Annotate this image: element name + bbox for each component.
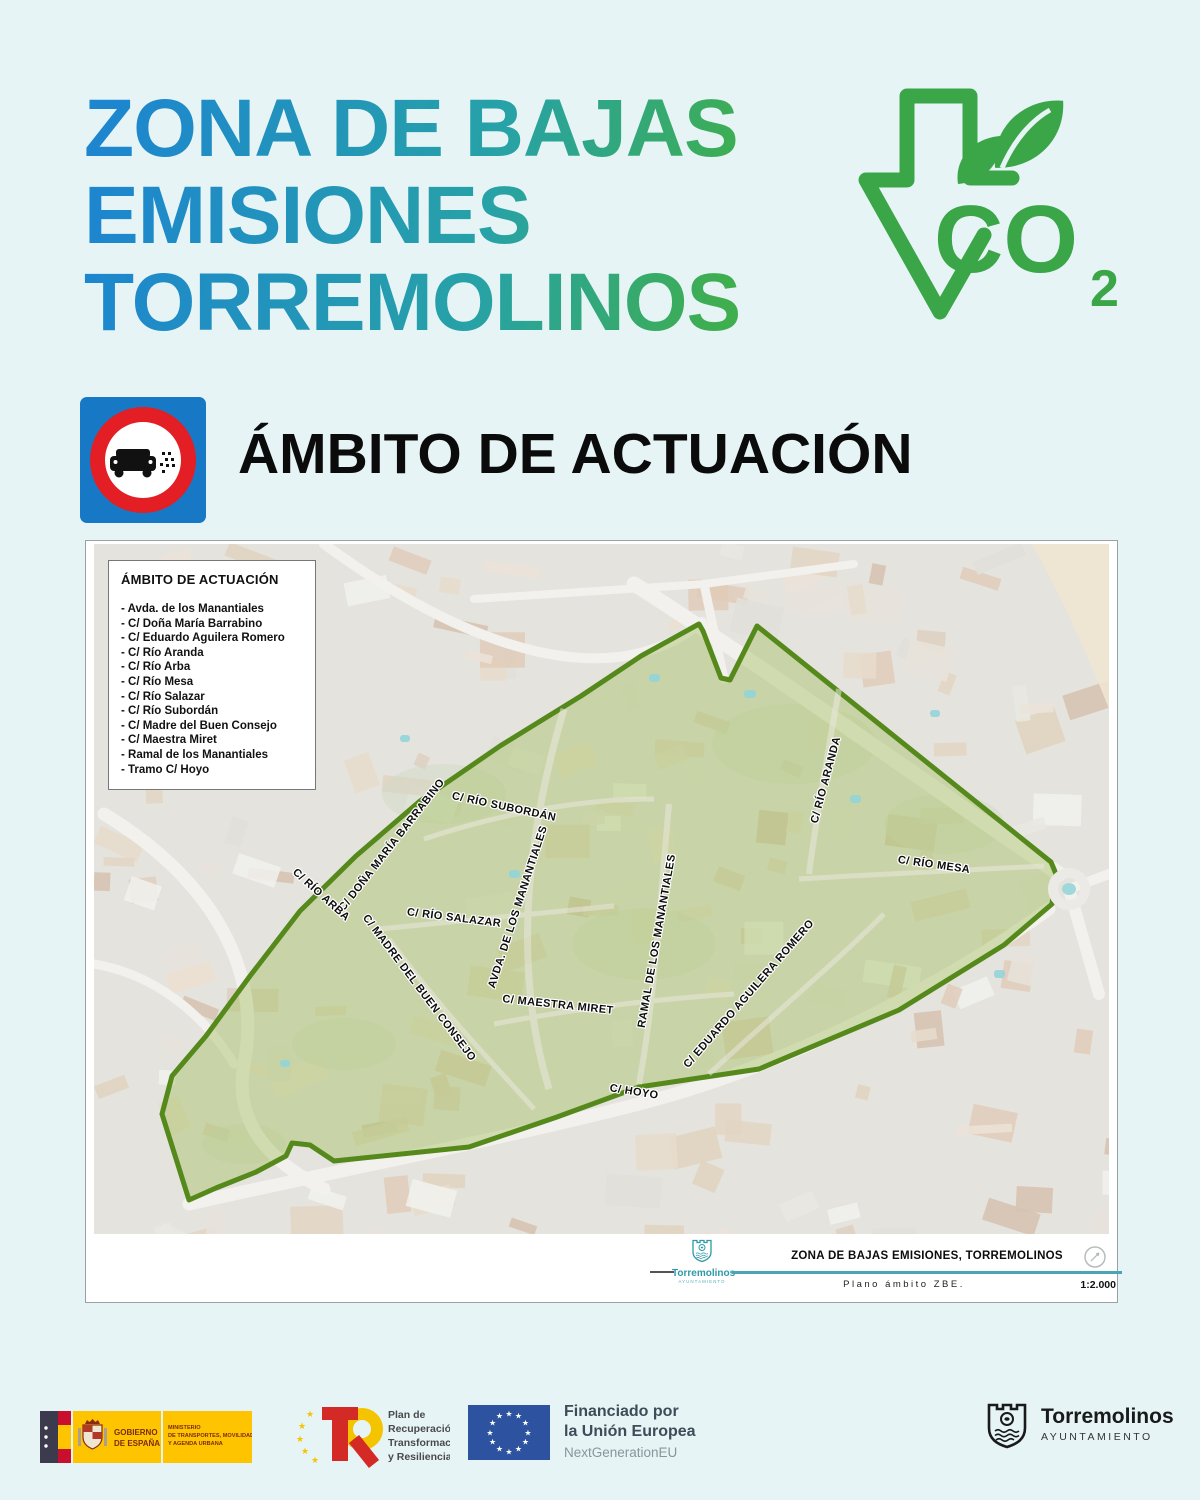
prtr-t-stem (332, 1420, 348, 1461)
map-legend: ÁMBITO DE ACTUACIÓN - Avda. de los Manan… (108, 560, 316, 790)
map-title: ZONA DE BAJAS EMISIONES, TORREMOLINOS (739, 1250, 1115, 1262)
legend-street-item: - C/ Río Subordán (121, 704, 305, 719)
svg-text:★: ★ (306, 1409, 314, 1419)
street-label: C/ RÍO ARBA (290, 866, 352, 923)
legend-street-list: - Avda. de los Manantiales- C/ Doña Marí… (121, 602, 305, 777)
page-title: ZONA DE BAJAS EMISIONES TORREMOLINOS (84, 86, 864, 347)
eu-nextgen-text: NextGenerationEU (564, 1445, 696, 1460)
spain-flag-icon (58, 1411, 71, 1463)
ministry-text-3: Y AGENDA URBANA (168, 1441, 223, 1447)
titleblock-dash (650, 1271, 674, 1273)
prtr-text-4: y Resiliencia (388, 1451, 450, 1463)
legend-street-item: - C/ Doña María Barrabino (121, 617, 305, 632)
co2-reduction-icon: CO 2 (852, 80, 1148, 348)
gobierno-text-2: DE ESPAÑA (114, 1439, 160, 1448)
eu-star-icon: ★ (496, 1412, 503, 1421)
eu-funding-text-2: la Unión Europea (564, 1422, 696, 1442)
torremolinos-name: Torremolinos (1041, 1406, 1174, 1428)
street-label: C/ EDUARDO AGUILERA ROMERO (681, 917, 816, 1070)
eu-star-icon: ★ (505, 1447, 512, 1456)
gobierno-text-1: GOBIERNO (114, 1428, 158, 1437)
street-label: C/ DOÑA MARÍA BARRABINO (337, 777, 448, 914)
torremolinos-ayuntamiento-logo: Torremolinos AYUNTAMIENTO (985, 1398, 1174, 1450)
legend-street-item: - C/ Río Arba (121, 660, 305, 675)
legend-street-item: - Tramo C/ Hoyo (121, 763, 305, 778)
torremolinos-shield-icon (985, 1398, 1029, 1450)
prtr-text-2: Recuperación, (388, 1423, 450, 1435)
aerial-map: C/ RÍO SUBORDÁNC/ DOÑA MARÍA BARRABINOC/… (94, 544, 1109, 1234)
svg-text:★: ★ (298, 1421, 306, 1431)
title-line-3: TORREMOLINOS (84, 260, 864, 347)
co2-subscript: 2 (1090, 260, 1119, 318)
torremolinos-sub: AYUNTAMIENTO (1041, 1431, 1174, 1443)
gobierno-espana-logo: GOBIERNO DE ESPAÑA MINISTERIO DE TRANSPO… (40, 1408, 252, 1471)
map-titleblock: Torremolinos AYUNTAMIENTO ZONA DE BAJAS … (94, 1234, 1109, 1298)
legend-street-item: - C/ Río Aranda (121, 646, 305, 661)
torremolinos-shield-icon (691, 1237, 713, 1263)
legend-street-item: - C/ Eduardo Aguilera Romero (121, 631, 305, 646)
no-emissions-sign-icon (80, 397, 206, 523)
titleblock-logo-sub: AYUNTAMIENTO (672, 1279, 732, 1284)
svg-text:★: ★ (311, 1455, 319, 1465)
eu-star-icon: ★ (486, 1428, 493, 1437)
street-label: C/ HOYO (609, 1082, 660, 1102)
title-line-2: EMISIONES (84, 173, 864, 260)
eu-funding-logo: ★★★★★★★★★★★★ Financiado por la Unión Eur… (468, 1402, 696, 1460)
titleblock-torremolinos-logo: Torremolinos AYUNTAMIENTO (672, 1237, 732, 1284)
legend-street-item: - Ramal de los Manantiales (121, 748, 305, 763)
prtr-text-1: Plan de (388, 1409, 426, 1421)
prtr-t-bar (322, 1407, 358, 1420)
eu-funding-text-1: Financiado por (564, 1402, 696, 1422)
legend-street-item: - C/ Río Salazar (121, 690, 305, 705)
street-label: C/ MADRE DEL BUEN CONSEJO (360, 912, 478, 1063)
prtr-text-3: Transformación (388, 1437, 450, 1449)
titleblock-logo-name: Torremolinos (672, 1268, 732, 1279)
svg-text:★: ★ (296, 1434, 304, 1444)
legend-street-item: - C/ Maestra Miret (121, 733, 305, 748)
gobierno-navy-strip (40, 1411, 58, 1463)
street-label: C/ RÍO ARANDA (809, 735, 844, 824)
legend-street-item: - Avda. de los Manantiales (121, 602, 305, 617)
ministry-text-2: DE TRANSPORTES, MOVILIDAD (168, 1433, 252, 1439)
street-label: RAMAL DE LOS MANANTIALES (636, 853, 678, 1029)
prtr-stars-icon: ★★★★★ (296, 1409, 319, 1465)
street-label: C/ RÍO SUBORDÁN (451, 790, 557, 824)
eu-flag: ★★★★★★★★★★★★ (468, 1405, 550, 1460)
map-subtitle: Plano ámbito ZBE. (739, 1279, 1069, 1290)
legend-street-item: - C/ Río Mesa (121, 675, 305, 690)
compass-icon (1082, 1244, 1108, 1270)
eu-star-icon: ★ (496, 1444, 503, 1453)
ministry-text-1: MINISTERIO (168, 1425, 201, 1431)
eu-star-icon: ★ (505, 1409, 512, 1418)
svg-text:★: ★ (301, 1446, 309, 1456)
eu-star-icon: ★ (515, 1444, 522, 1453)
co2-text: CO (934, 186, 1078, 293)
eu-star-icon: ★ (522, 1438, 529, 1447)
legend-title: ÁMBITO DE ACTUACIÓN (121, 572, 305, 587)
eu-star-icon: ★ (524, 1428, 531, 1437)
street-label: C/ RÍO SALAZAR (406, 906, 502, 929)
map-scale: 1:2.000 (1062, 1279, 1116, 1291)
titleblock-rule (732, 1271, 1122, 1274)
street-label: C/ MAESTRA MIRET (502, 993, 614, 1017)
plan-recuperacion-logo: ★★★★★ Plan de Recuperación, Transformaci… (292, 1401, 450, 1474)
map-sheet: C/ RÍO SUBORDÁNC/ DOÑA MARÍA BARRABINOC/… (85, 540, 1118, 1303)
eu-star-icon: ★ (489, 1438, 496, 1447)
street-label: C/ RÍO MESA (897, 854, 971, 876)
section-heading: ÁMBITO DE ACTUACIÓN (238, 421, 912, 487)
title-line-1: ZONA DE BAJAS (84, 86, 864, 173)
eu-star-icon: ★ (522, 1419, 529, 1428)
poster: ZONA DE BAJAS EMISIONES TORREMOLINOS CO … (0, 0, 1200, 1500)
street-label: AVDA. DE LOS MANANTIALES (486, 824, 550, 990)
legend-street-item: - C/ Madre del Buen Consejo (121, 719, 305, 734)
